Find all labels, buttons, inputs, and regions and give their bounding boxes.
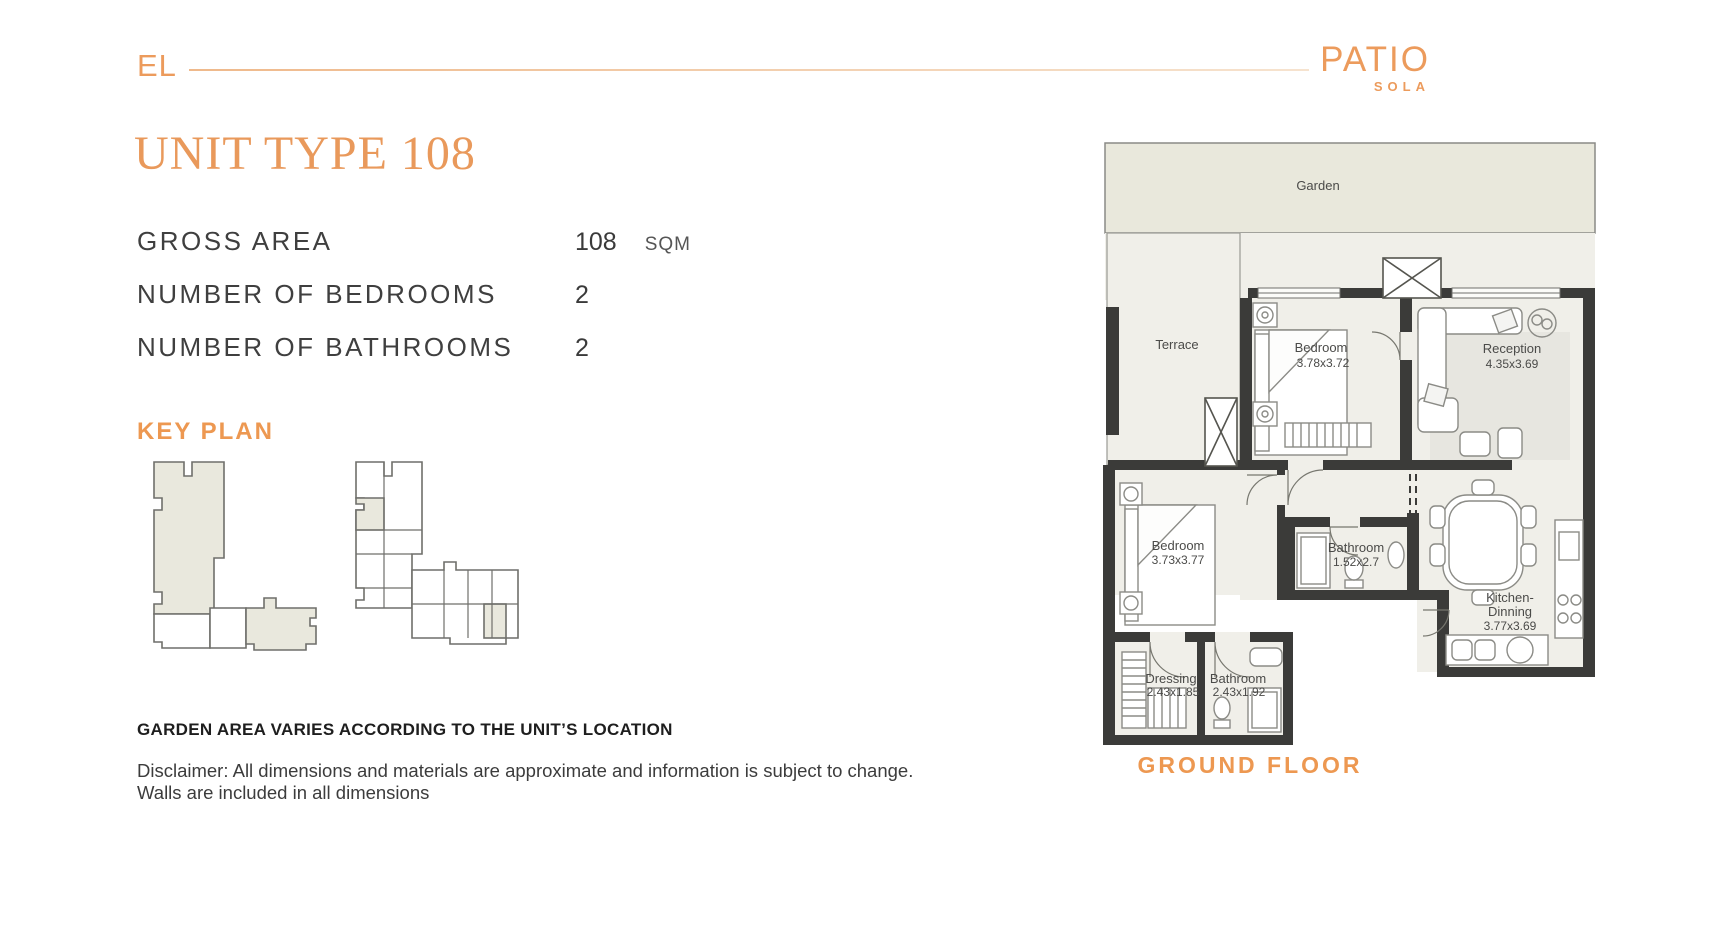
bedroom1-label: Bedroom bbox=[1295, 340, 1348, 355]
dressing-dims: 2.43x1.85 bbox=[1147, 685, 1200, 699]
garden-note: GARDEN AREA VARIES ACCORDING TO THE UNIT… bbox=[137, 720, 673, 740]
dressing-label: Dressing bbox=[1145, 671, 1196, 686]
spec-unit: SQM bbox=[645, 234, 691, 256]
spec-row-bathrooms: NUMBER OF BATHROOMS 2 bbox=[137, 332, 757, 385]
patio-logo-text: PATIO bbox=[1318, 42, 1430, 77]
spec-label: GROSS AREA bbox=[137, 226, 575, 257]
bathroom2-dims: 2.43x1.92 bbox=[1213, 685, 1266, 699]
floorplan-diagram: Garden Terrace Bedroom 3.78x3.72 Recepti… bbox=[1100, 140, 1600, 755]
bathroom1-label: Bathroom bbox=[1328, 540, 1384, 555]
sola-logo-text: SOLA bbox=[1318, 79, 1430, 94]
spec-label: NUMBER OF BATHROOMS bbox=[137, 332, 575, 363]
disclaimer: Disclaimer: All dimensions and materials… bbox=[137, 760, 913, 804]
bathroom1-dims: 1.52x2.7 bbox=[1333, 555, 1379, 569]
kitchen-dims: 3.77x3.69 bbox=[1484, 619, 1537, 633]
bedroom2-dims: 3.73x3.77 bbox=[1152, 553, 1205, 567]
bathroom2-label: Bathroom bbox=[1210, 671, 1266, 686]
reception-label: Reception bbox=[1483, 341, 1542, 356]
disclaimer-line-2: Walls are included in all dimensions bbox=[137, 782, 913, 804]
garden-area bbox=[1105, 143, 1595, 233]
spec-value: 2 bbox=[575, 334, 589, 363]
disclaimer-line-1: Disclaimer: All dimensions and materials… bbox=[137, 760, 913, 782]
el-logo: EL bbox=[137, 48, 177, 84]
bedroom1-dims: 3.78x3.72 bbox=[1297, 356, 1350, 370]
reception-dims: 4.35x3.69 bbox=[1486, 357, 1539, 371]
spec-row-bedrooms: NUMBER OF BEDROOMS 2 bbox=[137, 279, 757, 332]
spec-label: NUMBER OF BEDROOMS bbox=[137, 279, 575, 310]
page-title: UNIT TYPE 108 bbox=[134, 126, 476, 181]
spec-value: 2 bbox=[575, 281, 589, 310]
kitchen-label-2: Dinning bbox=[1488, 604, 1532, 619]
header-rule bbox=[189, 69, 1309, 71]
keyplan-heading: KEY PLAN bbox=[137, 418, 274, 446]
terrace-label: Terrace bbox=[1155, 337, 1198, 352]
spec-list: GROSS AREA 108 SQM NUMBER OF BEDROOMS 2 … bbox=[137, 226, 757, 385]
patio-sola-logo: PATIO SOLA bbox=[1318, 42, 1430, 94]
ground-floor-label: GROUND FLOOR bbox=[1050, 752, 1450, 779]
garden-label: Garden bbox=[1296, 178, 1339, 193]
keyplan-diagram bbox=[140, 458, 530, 658]
bedroom2-label: Bedroom bbox=[1152, 538, 1205, 553]
spec-row-gross-area: GROSS AREA 108 SQM bbox=[137, 226, 757, 279]
brochure-page: EL PATIO SOLA UNIT TYPE 108 GROSS AREA 1… bbox=[0, 0, 1726, 938]
spec-value: 108 bbox=[575, 228, 617, 257]
kitchen-label: Kitchen- bbox=[1486, 590, 1534, 605]
